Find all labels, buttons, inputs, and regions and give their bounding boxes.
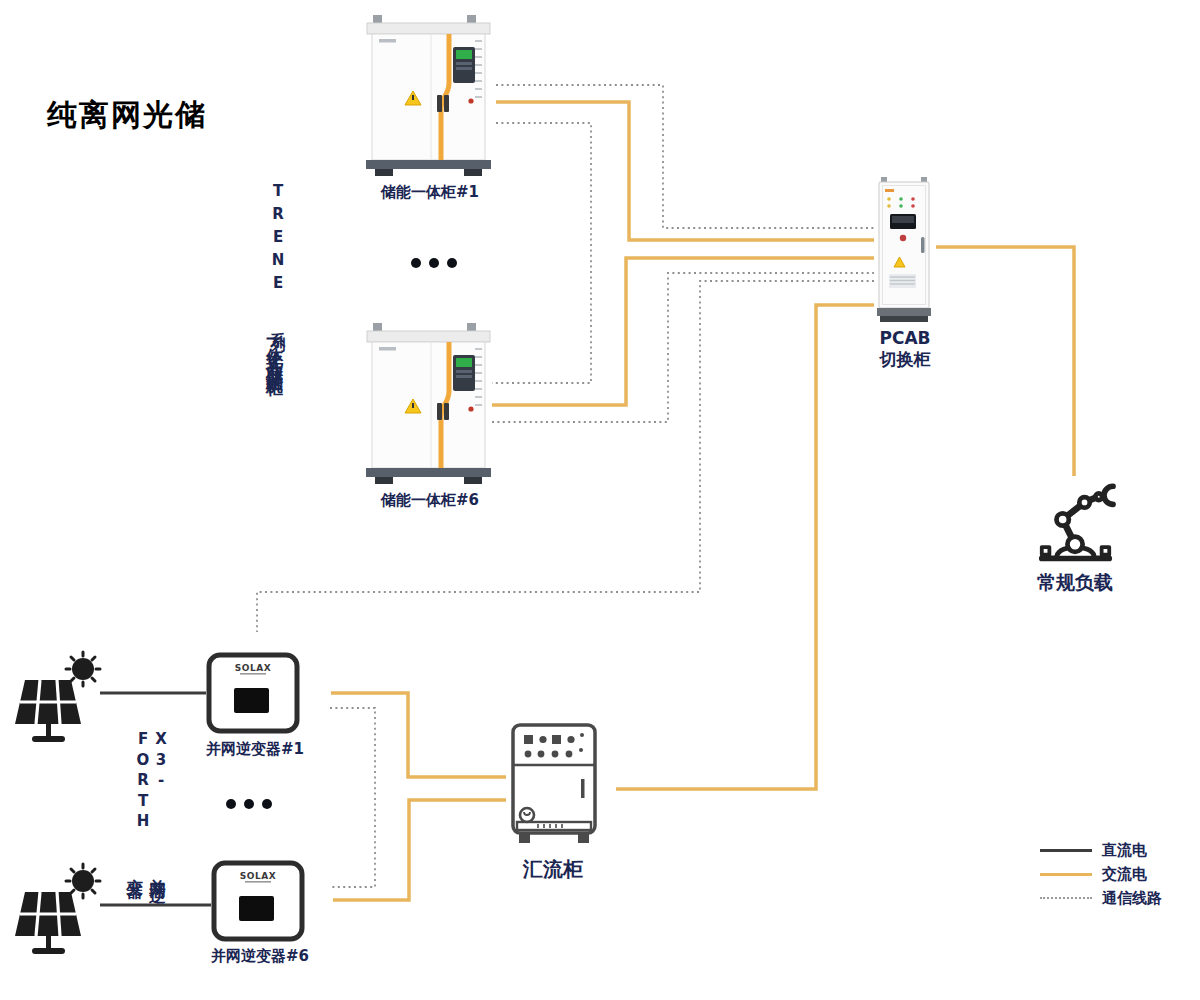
comm-line-cabinet1-cabinet6 xyxy=(492,123,591,383)
inverter-series-name: X3-FORTH xyxy=(130,730,170,849)
combiner-cabinet xyxy=(508,722,600,848)
legend-row-ac: 交流电 xyxy=(1040,862,1162,886)
inverter-1-label: 并网逆变器#1 xyxy=(185,740,325,759)
inverter-series-description: 并网逆变器 xyxy=(124,865,170,880)
pcab-label-line2: 切换柜 xyxy=(845,349,965,370)
pcab-label-line1: PCAB xyxy=(845,328,965,349)
ac-line-cabinet1-pcab xyxy=(496,102,874,240)
legend-row-dc: 直流电 xyxy=(1040,838,1162,862)
storage-cabinet-6-label: 储能一体柜#6 xyxy=(355,491,505,510)
comm-line-pcab-inverters xyxy=(257,281,874,632)
inverter-1 xyxy=(206,652,300,734)
storage-series-description: 一体化工商业储能机柜 xyxy=(262,330,287,370)
pcab-cabinet-icon xyxy=(876,177,932,323)
storage-cabinet-1 xyxy=(365,15,492,178)
storage-cabinet-6 xyxy=(365,323,492,486)
ac-line-inverter6-combiner xyxy=(333,800,506,900)
solar-panel-1 xyxy=(12,650,107,750)
diagram-canvas: SOLAX xyxy=(0,0,1200,1000)
inverter-6-label: 并网逆变器#6 xyxy=(190,947,330,966)
inverter-icon xyxy=(211,860,305,942)
solar-panel-icon xyxy=(12,650,107,750)
combiner-label: 汇流柜 xyxy=(493,856,613,883)
ac-line-inverter1-combiner xyxy=(331,693,506,777)
inverter-6 xyxy=(211,860,305,942)
load-label: 常规负载 xyxy=(1015,570,1135,596)
page-title: 纯离网光储 xyxy=(47,95,207,136)
storage-series-name: TRENE 系列 xyxy=(268,182,287,330)
legend-label-ac: 交流电 xyxy=(1102,865,1147,884)
legend-label-comm: 通信线路 xyxy=(1102,889,1162,908)
wiring-layer xyxy=(0,0,1200,1000)
comm-line-cabinet1-pcab xyxy=(496,85,874,228)
storage-cabinet-icon xyxy=(365,323,492,486)
comm-line-sample xyxy=(1040,897,1092,899)
inverter-series-label: X3-FORTH 并网逆变器 xyxy=(124,730,170,880)
storage-cabinet-1-label: 储能一体柜#1 xyxy=(355,183,505,202)
ellipsis-dots-cabinets xyxy=(411,258,457,268)
ac-line-combiner-pcab xyxy=(616,305,874,789)
solar-panel-2 xyxy=(12,862,107,962)
solar-panel-icon xyxy=(12,862,107,962)
pcab-label: PCAB 切换柜 xyxy=(845,328,965,370)
storage-cabinet-icon xyxy=(365,15,492,178)
ellipsis-dots-inverters xyxy=(226,799,272,809)
robot-arm-icon xyxy=(1028,472,1123,567)
dc-line-sample xyxy=(1040,849,1092,852)
comm-line-inverter1-inverter6 xyxy=(330,708,375,887)
legend: 直流电 交流电 通信线路 xyxy=(1040,838,1162,910)
load-robot xyxy=(1028,472,1123,567)
combiner-cabinet-icon xyxy=(508,722,600,848)
pcab-cabinet xyxy=(876,177,932,323)
ac-line-sample xyxy=(1040,873,1092,876)
legend-row-comm: 通信线路 xyxy=(1040,886,1162,910)
legend-label-dc: 直流电 xyxy=(1102,841,1147,860)
inverter-icon xyxy=(206,652,300,734)
storage-series-label: TRENE 系列 一体化工商业储能机柜 xyxy=(262,168,287,458)
